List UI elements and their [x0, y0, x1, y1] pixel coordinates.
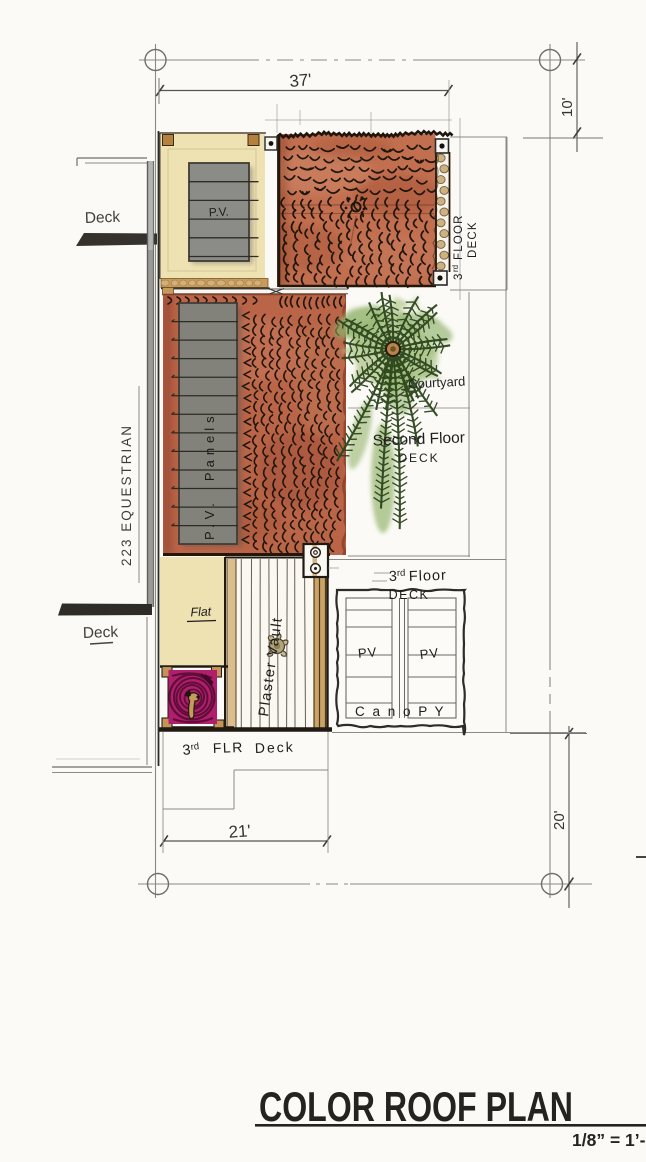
svg-text:37': 37' — [289, 70, 313, 91]
svg-text:Flat: Flat — [190, 604, 212, 619]
svg-text:rd: rd — [190, 741, 200, 753]
svg-text:DECK: DECK — [398, 451, 439, 465]
svg-text:1/8” = 1’-: 1/8” = 1’- — [572, 1130, 646, 1150]
svg-text:3: 3 — [453, 274, 465, 280]
svg-text:FLOOR: FLOOR — [453, 214, 465, 260]
svg-text:Courtyard: Courtyard — [408, 374, 466, 392]
svg-text:Deck: Deck — [255, 739, 295, 756]
svg-text:FLR: FLR — [213, 739, 244, 756]
svg-text:DECK: DECK — [389, 588, 430, 602]
svg-text:PV: PV — [357, 644, 378, 661]
svg-text:10': 10' — [559, 97, 576, 117]
svg-text:rd: rd — [451, 265, 460, 272]
svg-text:COLOR ROOF PLAN: COLOR ROOF PLAN — [259, 1083, 573, 1130]
svg-text:Deck: Deck — [85, 209, 121, 227]
svg-text:20': 20' — [551, 810, 568, 830]
svg-text:P.V. Panels: P.V. Panels — [202, 411, 217, 540]
svg-text:Deck: Deck — [83, 624, 119, 642]
svg-text:Second Floor: Second Floor — [372, 429, 465, 449]
svg-text:DECK: DECK — [467, 221, 479, 258]
svg-text:rd: rd — [397, 568, 406, 579]
svg-text:21': 21' — [228, 821, 251, 841]
svg-text:PV: PV — [419, 645, 440, 662]
svg-text:223 EQUESTRIAN: 223 EQUESTRIAN — [119, 424, 134, 566]
svg-text:C a n o P Y: C a n o P Y — [355, 704, 446, 719]
svg-text:Floor: Floor — [409, 568, 448, 585]
svg-text:P.V.: P.V. — [208, 204, 229, 219]
